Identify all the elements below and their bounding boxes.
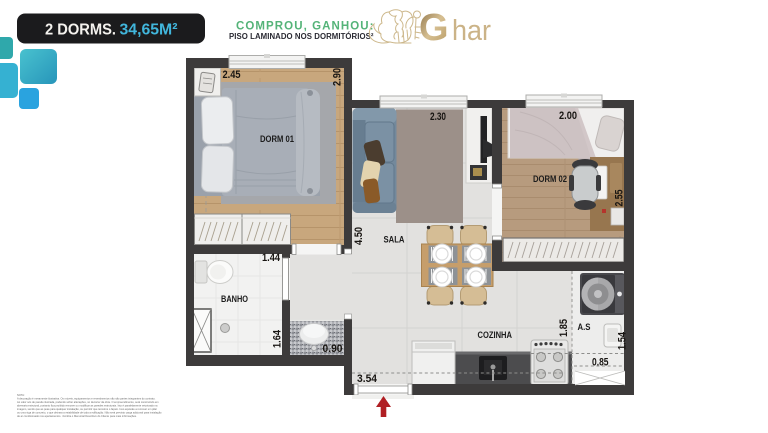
- svg-text:Ao valor sós de parede ilustra: Ao valor sós de parede ilustrada, podend…: [17, 400, 159, 404]
- svg-text:A.S: A.S: [578, 322, 591, 332]
- svg-text:PISO LAMINADO NOS DORMITÓRIOS²: PISO LAMINADO NOS DORMITÓRIOS²: [229, 32, 374, 41]
- svg-text:1.64: 1.64: [272, 329, 284, 348]
- svg-text:3.54: 3.54: [357, 373, 378, 385]
- svg-text:2.45: 2.45: [223, 69, 241, 81]
- svg-text:0.90: 0.90: [323, 343, 343, 355]
- svg-text:NOTA:: NOTA:: [17, 393, 25, 397]
- svg-text:0.85: 0.85: [592, 357, 609, 369]
- svg-text:2.55: 2.55: [614, 190, 626, 207]
- svg-text:4.50: 4.50: [353, 227, 365, 245]
- svg-text:1.54: 1.54: [617, 331, 629, 350]
- svg-text:COMPROU, GANHOU:: COMPROU, GANHOU:: [236, 21, 375, 33]
- svg-text:34,65M²: 34,65M²: [120, 22, 178, 39]
- svg-text:G: G: [419, 7, 449, 49]
- svg-text:1.44: 1.44: [262, 252, 281, 264]
- svg-text:2.30: 2.30: [430, 111, 446, 123]
- svg-text:2.90: 2.90: [332, 68, 344, 86]
- svg-text:har: har: [452, 15, 491, 47]
- svg-text:ou uma viga de concreto, o que: ou uma viga de concreto, o que deixara a…: [17, 411, 162, 415]
- svg-text:2.00: 2.00: [559, 110, 577, 122]
- svg-text:DORM 01: DORM 01: [260, 134, 294, 144]
- svg-text:imagem, sendo que as peas pa: imagem, sendo que as peas para qualquer …: [17, 407, 157, 411]
- svg-text:A decoração é meramente ilustr: A decoração é meramente ilustrativa. Os …: [17, 397, 156, 401]
- svg-text:1.85: 1.85: [558, 319, 570, 337]
- svg-text:DORM 02: DORM 02: [533, 174, 567, 184]
- svg-text:2 DORMS.: 2 DORMS.: [45, 22, 116, 39]
- svg-text:BANHO: BANHO: [221, 294, 248, 304]
- svg-text:alvenaria estrutural, portanto: alvenaria estrutural, portanto fica proi…: [17, 404, 158, 408]
- svg-text:COZINHA: COZINHA: [478, 330, 513, 340]
- svg-text:de ar condicionado nos apartam: de ar condicionado nos apartamentos. ¹Co…: [17, 414, 137, 418]
- svg-text:SALA: SALA: [384, 235, 405, 246]
